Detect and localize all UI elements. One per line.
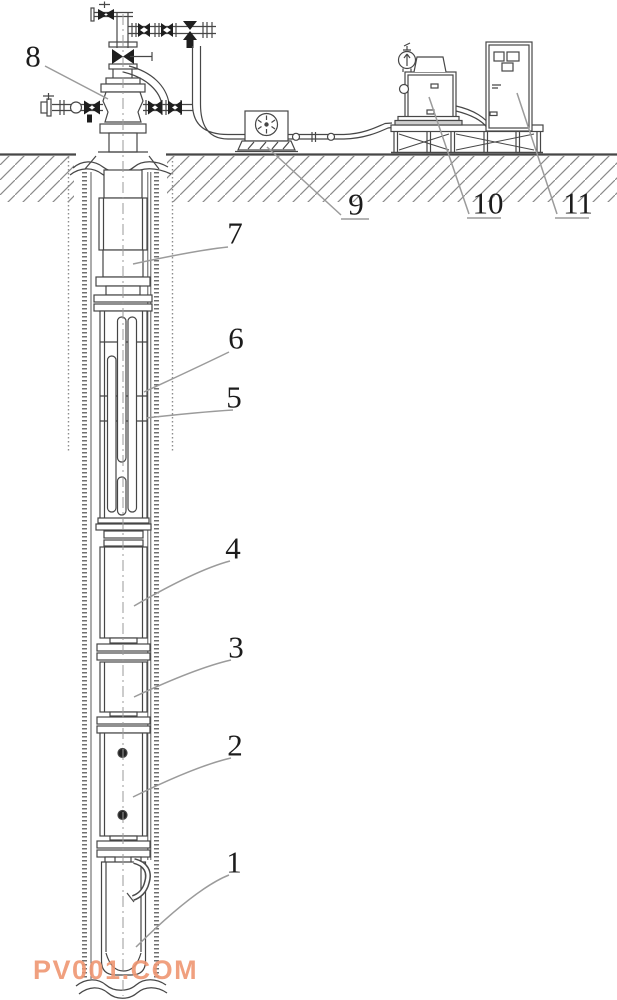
leader-8	[45, 66, 108, 99]
wellhead-christmas-tree	[41, 2, 228, 153]
injection-pump-unit	[395, 43, 462, 125]
well-completion-diagram: 1 2 3 4 5 6 7 8 9 10 11 PV001.COM	[0, 0, 617, 1000]
ground-hatch-right	[167, 156, 617, 202]
diagram-canvas	[0, 0, 617, 1000]
watermark: PV001.COM	[33, 955, 198, 986]
label-8: 8	[25, 40, 41, 71]
label-9: 9	[348, 188, 364, 219]
leader-4	[134, 561, 230, 606]
wellhead-left-outlet	[41, 93, 103, 123]
label-1: 1	[226, 846, 242, 877]
label-2: 2	[227, 729, 243, 760]
surface-flowline	[228, 111, 392, 152]
downhole-cable	[148, 172, 151, 860]
label-6: 6	[228, 322, 244, 353]
label-7: 7	[227, 217, 243, 248]
label-11: 11	[563, 187, 593, 218]
label-10: 10	[473, 187, 504, 218]
leader-1	[136, 875, 229, 947]
label-5: 5	[226, 381, 242, 412]
ground-hatch-left	[0, 156, 74, 202]
ground-surface	[0, 155, 617, 203]
flowline-drop-pipe	[193, 46, 201, 104]
label-4: 4	[225, 532, 241, 563]
surface-skid-equipment	[391, 42, 543, 153]
wellhead-right-outlet	[143, 100, 193, 115]
leader-3	[134, 660, 231, 697]
flow-meter	[235, 111, 298, 152]
leader-5	[146, 410, 233, 418]
label-3: 3	[228, 631, 244, 662]
